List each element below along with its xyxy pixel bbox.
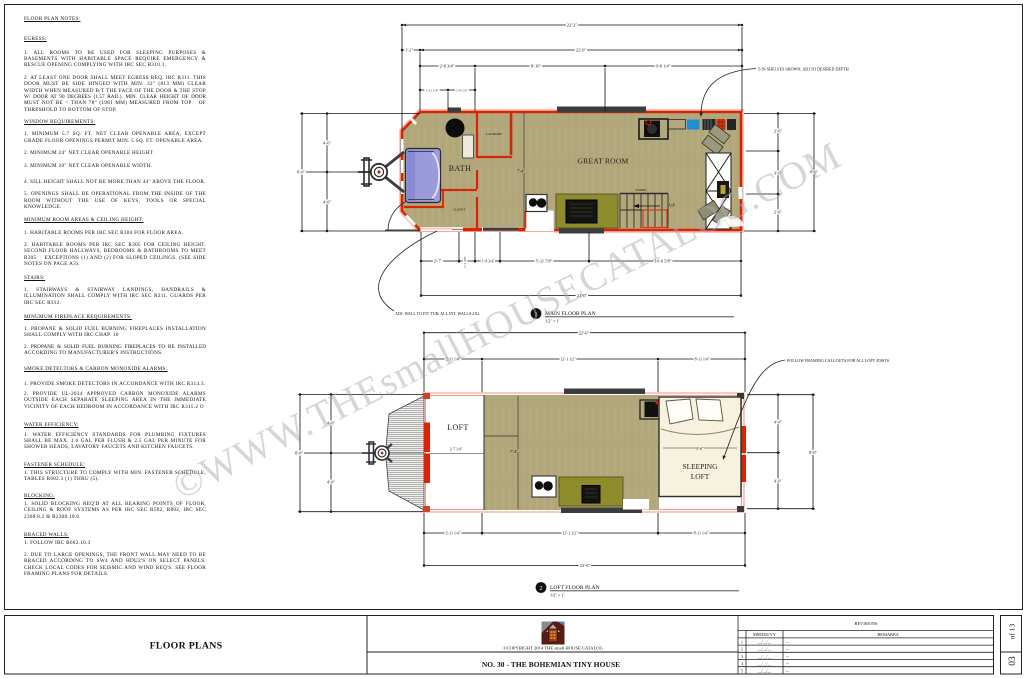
svg-text:--: -- (786, 647, 789, 652)
svg-text:--: -- (786, 640, 789, 645)
svg-text:1: 1 (741, 641, 743, 645)
svg-text:__/__/__: __/__/__ (757, 641, 772, 645)
svg-text:2'-11 1/4": 2'-11 1/4" (446, 532, 461, 536)
svg-text:7'-4": 7'-4" (517, 169, 525, 174)
svg-text:22'-0": 22'-0" (576, 48, 587, 53)
svg-text:LOFT FLOOR PLAN: LOFT FLOOR PLAN (550, 585, 600, 591)
svg-text:1'-8 3/4": 1'-8 3/4" (482, 260, 495, 264)
svg-text:22'-2": 22'-2" (567, 23, 578, 28)
svg-text:5-IN SHELVES SHOWN; ADJ TO DES: 5-IN SHELVES SHOWN; ADJ TO DESIRED DEPTH (758, 67, 849, 72)
svg-text:REMARKS: REMARKS (877, 632, 899, 637)
svg-text:2: 2 (540, 586, 543, 592)
svg-text:03: 03 (1008, 656, 1018, 666)
svg-text:4: 4 (741, 662, 743, 666)
svg-text:4'-0": 4'-0" (323, 200, 332, 205)
svg-text:--: -- (786, 661, 789, 666)
svg-text:2'-7": 2'-7" (434, 259, 443, 264)
svg-text:FLOOR PLANS: FLOOR PLANS (150, 641, 223, 652)
svg-text:FOLLOW FRAMING CALLOUTS FOR AL: FOLLOW FRAMING CALLOUTS FOR ALL LOFT JOI… (787, 358, 890, 363)
svg-text:8'-11 1/4": 8'-11 1/4" (694, 532, 709, 536)
svg-text:2'-6": 2'-6" (774, 129, 783, 134)
svg-text:CLOSET: CLOSET (453, 208, 467, 212)
svg-text:MM/DD/YY: MM/DD/YY (753, 632, 777, 637)
svg-text:7'-4": 7'-4" (510, 449, 518, 454)
svg-text:1'-11 1/4": 1'-11 1/4" (425, 89, 439, 93)
svg-text:1'-2": 1'-2" (405, 49, 413, 53)
svg-text:8'-10": 8'-10" (531, 64, 542, 69)
svg-text:NO. 30 - THE BOHEMIAN TINY HOU: NO. 30 - THE BOHEMIAN TINY HOUSE (482, 660, 620, 669)
svg-text:LOFT: LOFT (691, 472, 710, 481)
svg-text:1/2" = 1': 1/2" = 1' (550, 593, 565, 598)
svg-text:of 13: of 13 (1008, 623, 1017, 639)
svg-text:4'-0": 4'-0" (327, 480, 336, 485)
svg-text:2: 2 (741, 648, 743, 652)
svg-text:1'-1 3/4": 1'-1 3/4" (463, 256, 467, 268)
svg-text:5'-11 7/8": 5'-11 7/8" (536, 259, 553, 264)
svg-text:1'-9 1/2": 1'-9 1/2" (456, 89, 468, 93)
svg-text:LOFT: LOFT (447, 423, 469, 432)
svg-text:2'-8 3/4": 2'-8 3/4" (440, 64, 455, 69)
svg-text:__/__/__: __/__/__ (757, 648, 772, 652)
svg-text:LAUNDRY: LAUNDRY (486, 132, 503, 136)
svg-text:9'-8 1/4": 9'-8 1/4" (656, 64, 671, 69)
svg-text:GREAT ROOM: GREAT ROOM (577, 157, 628, 166)
svg-text:UP: UP (669, 203, 675, 208)
svg-text:__/__/__: __/__/__ (757, 655, 772, 659)
svg-text:2'-6": 2'-6" (774, 210, 783, 215)
svg-text:12'-1 1/2": 12'-1 1/2" (561, 358, 576, 362)
svg-text:STAIRS: STAIRS (635, 188, 647, 192)
svg-text:8'-6": 8'-6" (697, 447, 704, 451)
svg-text:22'-0": 22'-0" (579, 330, 590, 335)
svg-text:BATH: BATH (449, 164, 472, 173)
svg-text:©COPYRIGHT 2014 THE small HOUS: ©COPYRIGHT 2014 THE small HOUSE CATALOG (503, 646, 603, 651)
svg-text:8'-11 1/4": 8'-11 1/4" (695, 358, 710, 362)
svg-text:__/__/__: __/__/__ (757, 669, 772, 673)
svg-text:3: 3 (741, 655, 743, 659)
svg-text:4'-0": 4'-0" (323, 141, 332, 146)
svg-text:4'-0": 4'-0" (774, 479, 783, 484)
svg-text:22'-0": 22'-0" (580, 563, 591, 568)
svg-text:--: -- (786, 668, 789, 673)
svg-text:5: 5 (741, 669, 743, 673)
svg-text:REVISIONS: REVISIONS (855, 621, 878, 626)
svg-text:12'-1 1/2": 12'-1 1/2" (563, 532, 578, 536)
svg-text:8'-0": 8'-0" (809, 450, 818, 455)
svg-text:__/__/__: __/__/__ (757, 662, 772, 666)
svg-text:2'-7 1/4": 2'-7 1/4" (450, 448, 463, 452)
svg-text:4'-0": 4'-0" (774, 420, 783, 425)
svg-text:--: -- (786, 654, 789, 659)
svg-text:8'-0": 8'-0" (297, 170, 306, 175)
svg-text:SLEEPING: SLEEPING (683, 462, 719, 471)
